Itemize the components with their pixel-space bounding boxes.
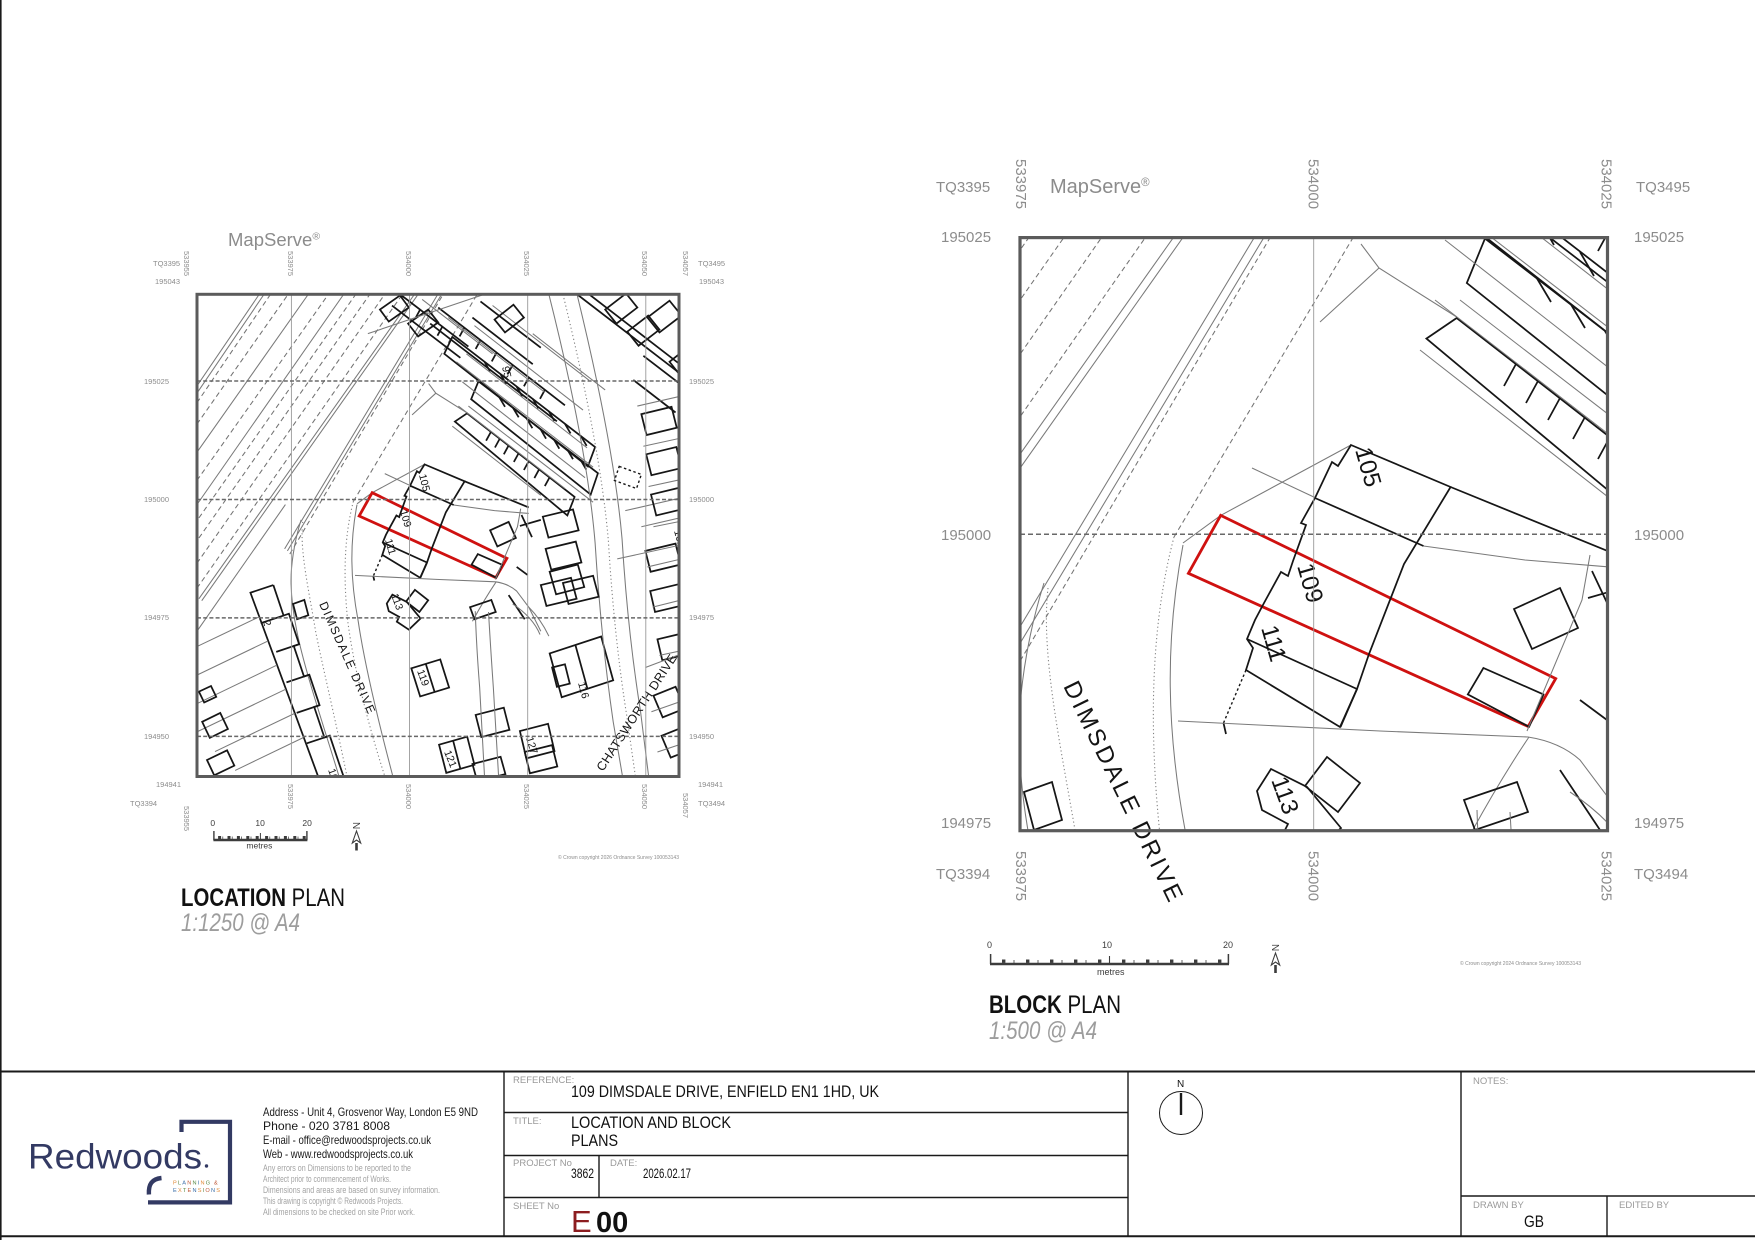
svg-text:N: N — [350, 822, 361, 829]
svg-text:Phone - 020 3781 8008: Phone - 020 3781 8008 — [263, 1119, 390, 1133]
svg-text:GB: GB — [1524, 1213, 1544, 1231]
svg-text:534057: 534057 — [681, 793, 690, 818]
svg-text:533955: 533955 — [182, 806, 191, 831]
svg-text:E: E — [571, 1204, 592, 1239]
svg-text:0: 0 — [210, 818, 215, 828]
svg-text:DATE:: DATE: — [610, 1158, 637, 1169]
svg-text:TITLE:: TITLE: — [513, 1116, 542, 1127]
svg-text:TQ3494: TQ3494 — [1634, 866, 1688, 883]
svg-text:10: 10 — [1102, 940, 1112, 950]
svg-text:TQ3495: TQ3495 — [698, 259, 725, 268]
svg-text:0: 0 — [987, 940, 992, 950]
svg-text:534050: 534050 — [640, 251, 649, 276]
svg-text:TQ3395: TQ3395 — [153, 259, 180, 268]
svg-text:534000: 534000 — [1305, 159, 1322, 209]
svg-text:MapServe®: MapServe® — [1050, 176, 1150, 198]
svg-text:195000: 195000 — [1634, 527, 1684, 544]
svg-text:534025: 534025 — [1598, 159, 1615, 209]
svg-text:This drawing is copyright © Re: This drawing is copyright © Redwoods Pro… — [263, 1196, 403, 1206]
svg-text:DRAWN BY: DRAWN BY — [1473, 1200, 1525, 1211]
svg-text:195000: 195000 — [689, 495, 714, 504]
svg-text:REFERENCE:: REFERENCE: — [513, 1075, 574, 1086]
svg-text:534025: 534025 — [522, 784, 531, 809]
svg-text:195043: 195043 — [155, 277, 180, 286]
svg-text:PROJECT No: PROJECT No — [513, 1158, 572, 1169]
svg-text:533955: 533955 — [182, 251, 191, 276]
svg-text:194975: 194975 — [144, 613, 169, 622]
svg-text:PLANNING &: PLANNING & — [173, 1180, 219, 1186]
svg-text:194950: 194950 — [144, 732, 169, 741]
svg-text:534025: 534025 — [522, 251, 531, 276]
svg-text:194975: 194975 — [689, 613, 714, 622]
svg-text:SHEET No: SHEET No — [513, 1201, 559, 1212]
svg-text:533975: 533975 — [286, 784, 295, 809]
svg-text:E-mail - office@redwoodsprojec: E-mail - office@redwoodsprojects.co.uk — [263, 1133, 432, 1147]
svg-text:534000: 534000 — [404, 251, 413, 276]
svg-text:534057: 534057 — [681, 251, 690, 276]
svg-text:194975: 194975 — [1634, 815, 1684, 832]
svg-text:20: 20 — [1223, 940, 1233, 950]
svg-text:20: 20 — [302, 818, 312, 828]
svg-text:© Crown copyright 2024 Ordnanc: © Crown copyright 2024 Ordnance Survey 1… — [1460, 960, 1581, 967]
svg-text:533975: 533975 — [1012, 159, 1029, 209]
svg-text:195000: 195000 — [144, 495, 169, 504]
svg-text:194941: 194941 — [156, 780, 181, 789]
svg-text:533975: 533975 — [286, 251, 295, 276]
svg-text:N: N — [1177, 1079, 1184, 1090]
svg-text:EDITED BY: EDITED BY — [1619, 1200, 1670, 1211]
svg-text:Architect prior to commencemen: Architect prior to commencement of Works… — [263, 1174, 391, 1184]
svg-text:3862: 3862 — [571, 1166, 594, 1181]
svg-text:Any errors on Dimensions to be: Any errors on Dimensions to be reported … — [263, 1163, 411, 1173]
svg-text:534000: 534000 — [1305, 851, 1322, 901]
svg-text:N: N — [1269, 944, 1280, 951]
svg-text:534050: 534050 — [640, 784, 649, 809]
svg-text:metres: metres — [1097, 967, 1125, 977]
svg-text:195025: 195025 — [144, 377, 169, 386]
svg-text:PLANS: PLANS — [571, 1132, 618, 1150]
svg-text:TQ3495: TQ3495 — [1636, 179, 1690, 196]
svg-text:195025: 195025 — [689, 377, 714, 386]
svg-text:EXTENSIONS: EXTENSIONS — [173, 1188, 221, 1194]
svg-text:Web - www.redwoodsprojects.co.: Web - www.redwoodsprojects.co.uk — [263, 1147, 414, 1161]
svg-text:2026.02.17: 2026.02.17 — [643, 1166, 691, 1181]
svg-text:109 DIMSDALE DRIVE, ENFIELD EN: 109 DIMSDALE DRIVE, ENFIELD EN1 1HD, UK — [571, 1083, 879, 1101]
svg-text:195000: 195000 — [941, 527, 991, 544]
svg-text:TQ3494: TQ3494 — [698, 799, 725, 808]
svg-text:194950: 194950 — [689, 732, 714, 741]
svg-text:TQ3395: TQ3395 — [936, 179, 990, 196]
svg-text:Address - Unit 4, Grosvenor Wa: Address - Unit 4, Grosvenor Way, London … — [263, 1105, 478, 1119]
svg-text:1:500 @ A4: 1:500 @ A4 — [989, 1017, 1097, 1045]
svg-text:195043: 195043 — [699, 277, 724, 286]
svg-text:195025: 195025 — [1634, 229, 1684, 246]
svg-text:194941: 194941 — [698, 780, 723, 789]
svg-text:metres: metres — [246, 841, 272, 851]
svg-text:All dimensions to be checked o: All dimensions to be checked on site Pri… — [263, 1207, 415, 1217]
svg-text:00: 00 — [596, 1207, 628, 1239]
svg-text:534025: 534025 — [1598, 851, 1615, 901]
svg-text:MapServe®: MapServe® — [228, 229, 320, 250]
svg-text:534000: 534000 — [404, 784, 413, 809]
svg-text:533975: 533975 — [1012, 851, 1029, 901]
svg-text:Redwoods: Redwoods — [28, 1138, 202, 1177]
svg-text:NOTES:: NOTES: — [1473, 1076, 1508, 1087]
svg-text:BLOCK PLAN: BLOCK PLAN — [989, 991, 1121, 1019]
svg-text:194975: 194975 — [941, 815, 991, 832]
svg-text:195025: 195025 — [941, 229, 991, 246]
svg-text:TQ3394: TQ3394 — [936, 866, 990, 883]
svg-text:1:1250 @ A4: 1:1250 @ A4 — [181, 909, 300, 937]
svg-text:LOCATION AND BLOCK: LOCATION AND BLOCK — [571, 1114, 731, 1132]
svg-text:10: 10 — [255, 818, 265, 828]
svg-text:Dimensions and areas are based: Dimensions and areas are based on survey… — [263, 1185, 440, 1195]
svg-text:LOCATION PLAN: LOCATION PLAN — [181, 884, 345, 912]
svg-text:© Crown copyright 2026 Ordnanc: © Crown copyright 2026 Ordnance Survey 1… — [558, 854, 679, 861]
svg-text:TQ3394: TQ3394 — [130, 799, 157, 808]
